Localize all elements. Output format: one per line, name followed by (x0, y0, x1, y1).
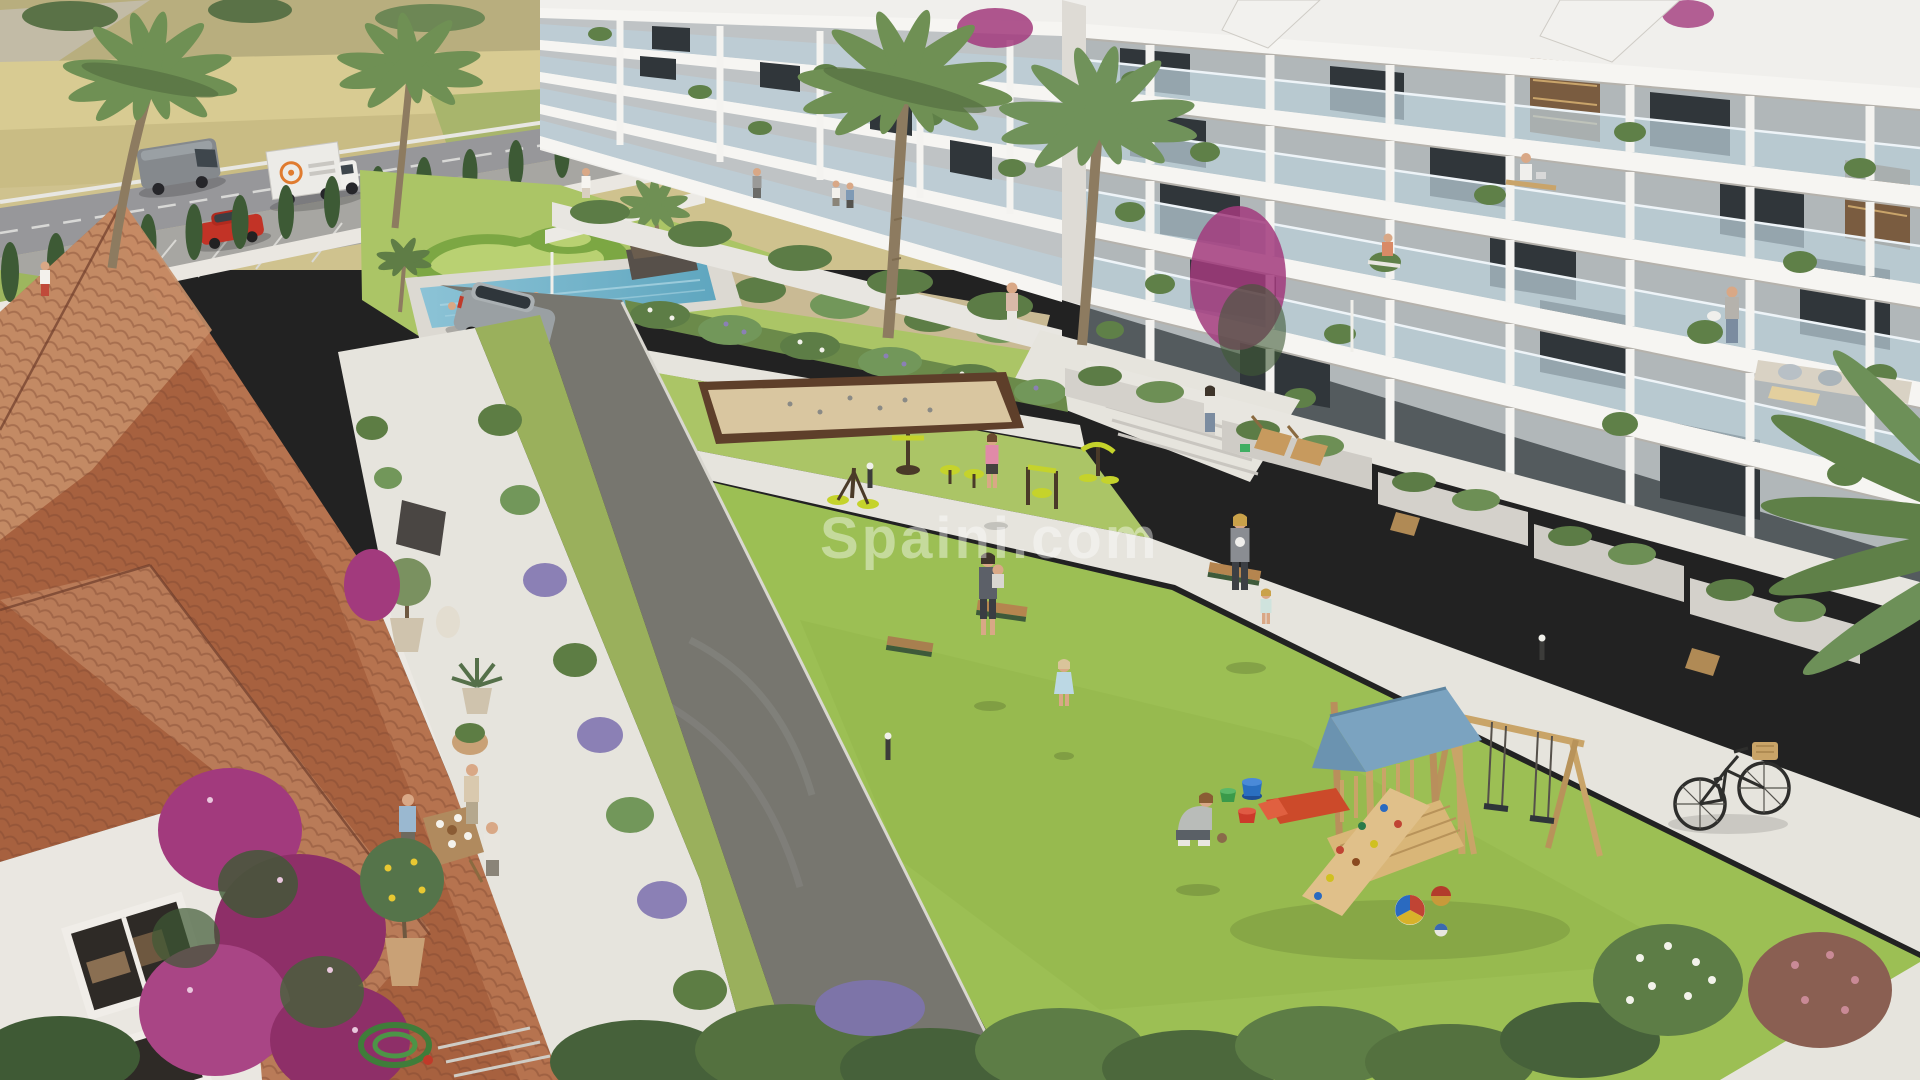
swimmer (448, 302, 456, 310)
red-flower-bush (1748, 932, 1892, 1048)
render-scene: Spaini.com (0, 0, 1920, 1080)
tall-pot (436, 606, 460, 638)
teapot (447, 825, 457, 835)
person-pool-deck (582, 168, 591, 198)
bike-seat (1714, 778, 1722, 780)
person-walker (40, 262, 50, 297)
bougainvillea-small (344, 549, 400, 621)
lavender-bush (815, 980, 925, 1036)
person-plaza-woman (1006, 283, 1018, 331)
swing-seat (1484, 806, 1508, 809)
hose-nozzle (423, 1055, 433, 1065)
watermark-text: Spaini.com (820, 506, 1159, 571)
beach-ball (1395, 895, 1425, 925)
render-canvas: Spaini.com (0, 0, 1920, 1080)
bike-basket (1752, 742, 1778, 760)
toy-on-grass (1217, 833, 1227, 843)
woman-walkway (1204, 386, 1216, 433)
kid-toy (1240, 444, 1250, 452)
swing-seat (1530, 818, 1554, 821)
diner-seated-white (484, 822, 500, 876)
person-path (753, 168, 762, 198)
white-flower-bush (1593, 924, 1743, 1036)
